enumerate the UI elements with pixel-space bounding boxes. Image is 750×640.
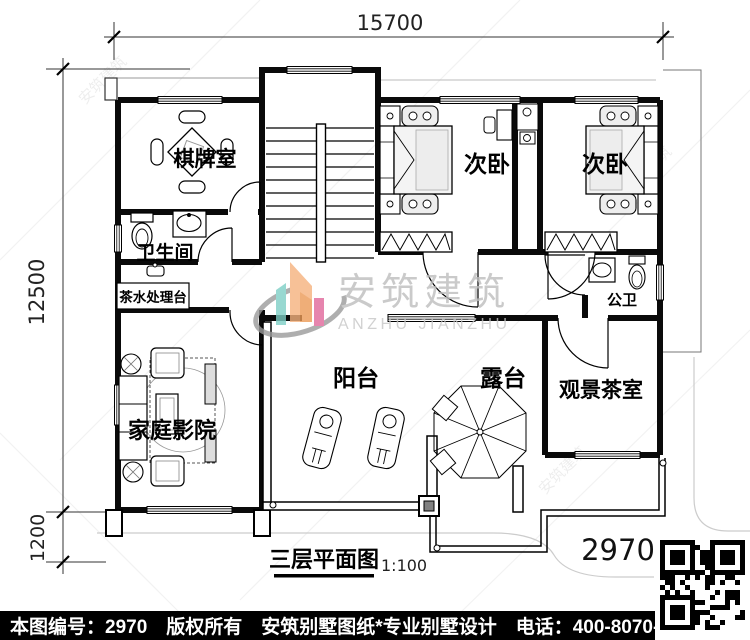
watermark-logo: 安筑建筑 ANZHU JIANZHU — [249, 262, 510, 345]
plan-title-underline — [274, 574, 374, 578]
room-label-terrace: 露台 — [480, 365, 526, 391]
home-theater-furniture — [119, 348, 225, 486]
room-label-tea-station: 茶水处理台 — [118, 289, 187, 305]
dim-height-bottom-left: 1200 — [27, 514, 49, 562]
room-label-public-wc: 公卫 — [607, 292, 637, 309]
lounger-icon — [301, 405, 344, 470]
plan-scale: 1:100 — [381, 556, 427, 575]
room-label-bedroom-right: 次卧 — [582, 151, 628, 177]
wc-sink-icon — [589, 258, 615, 282]
bed-icon-left — [380, 106, 452, 214]
sink-icon — [173, 211, 206, 237]
stairs — [266, 124, 374, 262]
desk-icon — [484, 110, 512, 140]
footer-brand: 安筑别墅图纸*专业别墅设计 — [261, 612, 496, 639]
floor-plan-drawing: 安筑建筑 安筑建筑 安筑建筑 15700 12500 1200 — [0, 0, 750, 613]
wardrobe-icon-left — [380, 232, 452, 252]
logo-bar-teal — [276, 283, 286, 325]
room-label-home-theater: 家庭影院 — [128, 418, 216, 443]
footer-copyright: 版权所有 — [166, 612, 242, 639]
qr-code — [655, 535, 750, 640]
wardrobe-icon-right — [545, 232, 617, 252]
room-label-bedroom-left: 次卧 — [464, 151, 510, 177]
logo-bar-pink — [314, 298, 324, 326]
stair-stringer — [317, 124, 326, 262]
dim-height-left: 12500 — [25, 259, 49, 326]
room-label-bathroom: 卫生间 — [136, 241, 193, 264]
room-label-balcony: 阳台 — [333, 365, 379, 391]
footer-plan-no: 本图编号：2970 — [10, 612, 147, 639]
room-label-view-tea-room: 观景茶室 — [559, 378, 643, 402]
watermark-brand-en-text: ANZHU JIANZHU — [338, 316, 511, 333]
dim-width-top: 15700 — [357, 11, 424, 35]
floor-plan-page: 安筑建筑 安筑建筑 安筑建筑 15700 12500 1200 — [0, 0, 750, 640]
qr-code-image — [655, 535, 750, 640]
terrace-chair-icon — [432, 395, 457, 420]
plan-number: 2970 — [581, 533, 655, 567]
wc-toilet-icon — [629, 256, 645, 289]
room-label-chess-room: 棋牌室 — [174, 147, 237, 171]
shaft-shelf-icon — [517, 104, 538, 144]
screen-icon — [205, 364, 216, 404]
watermark-brand-text: 安筑建筑 — [338, 272, 510, 314]
lounger-icon — [366, 406, 406, 471]
plan-title: 三层平面图 — [269, 547, 379, 572]
footer-bar: 本图编号：2970 版权所有 安筑别墅图纸*专业别墅设计 电话：400-8070… — [0, 611, 750, 640]
